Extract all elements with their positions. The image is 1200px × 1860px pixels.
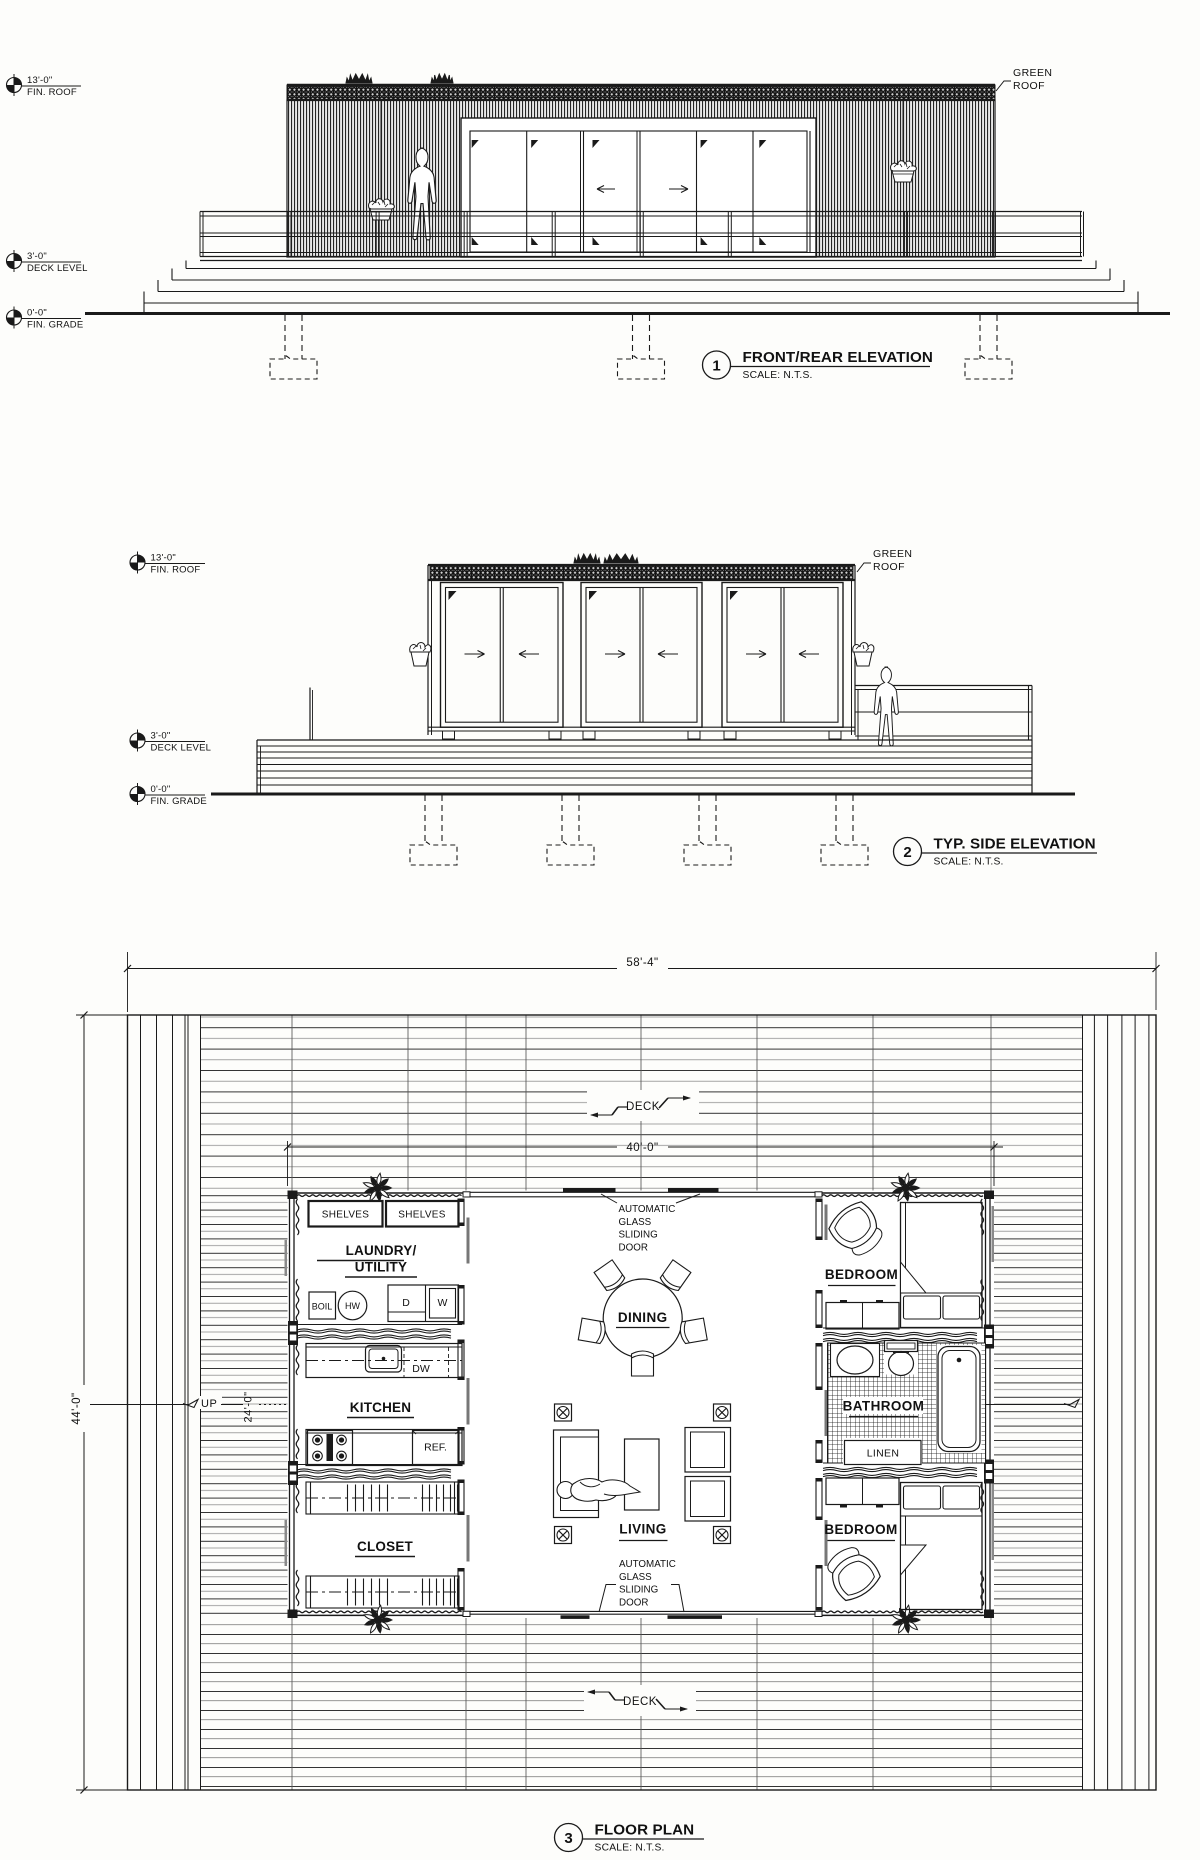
svg-text:AUTOMATIC: AUTOMATIC	[619, 1204, 676, 1215]
svg-text:TYP. SIDE ELEVATION: TYP. SIDE ELEVATION	[934, 836, 1096, 853]
svg-text:DOOR: DOOR	[619, 1242, 648, 1253]
svg-text:HW: HW	[345, 1301, 360, 1311]
svg-text:13'-0": 13'-0"	[27, 75, 52, 86]
svg-text:DECK: DECK	[623, 1696, 657, 1708]
svg-text:FIN. ROOF: FIN. ROOF	[27, 87, 77, 98]
svg-text:2: 2	[903, 844, 911, 861]
svg-text:W: W	[438, 1297, 448, 1309]
svg-text:SHELVES: SHELVES	[322, 1210, 370, 1221]
svg-text:SCALE: N.T.S.: SCALE: N.T.S.	[934, 857, 1004, 868]
svg-text:40'-0": 40'-0"	[626, 1142, 658, 1154]
svg-text:3: 3	[564, 1830, 572, 1847]
svg-text:FRONT/REAR ELEVATION: FRONT/REAR ELEVATION	[743, 349, 933, 366]
svg-text:3'-0": 3'-0"	[151, 731, 171, 742]
svg-text:ROOF: ROOF	[873, 561, 905, 573]
svg-text:D: D	[402, 1297, 410, 1309]
svg-text:GLASS: GLASS	[619, 1572, 652, 1583]
svg-text:SCALE: N.T.S.: SCALE: N.T.S.	[595, 1843, 665, 1854]
svg-text:3'-0": 3'-0"	[27, 251, 47, 262]
svg-text:0'-0": 0'-0"	[27, 308, 47, 319]
svg-text:DECK LEVEL: DECK LEVEL	[151, 743, 212, 754]
svg-text:SLIDING: SLIDING	[619, 1230, 658, 1241]
svg-text:FLOOR PLAN: FLOOR PLAN	[595, 1822, 695, 1839]
svg-text:LIVING: LIVING	[619, 1522, 666, 1537]
svg-text:LAUNDRY/: LAUNDRY/	[346, 1243, 417, 1258]
svg-text:24'-0": 24'-0"	[243, 1391, 255, 1422]
svg-text:BEDROOM: BEDROOM	[825, 1267, 898, 1282]
svg-text:BEDROOM: BEDROOM	[824, 1522, 897, 1537]
svg-text:0'-0": 0'-0"	[151, 784, 171, 795]
svg-text:DECK LEVEL: DECK LEVEL	[27, 263, 88, 274]
svg-text:REF.: REF.	[424, 1442, 447, 1454]
svg-text:1: 1	[712, 358, 720, 375]
svg-text:FIN. GRADE: FIN. GRADE	[151, 796, 207, 807]
svg-text:SHELVES: SHELVES	[398, 1210, 446, 1221]
svg-text:UTILITY: UTILITY	[355, 1260, 407, 1275]
svg-text:FIN. GRADE: FIN. GRADE	[27, 320, 83, 331]
svg-text:13'-0": 13'-0"	[151, 553, 176, 564]
svg-text:BOIL: BOIL	[312, 1302, 333, 1312]
svg-text:GREEN: GREEN	[1013, 67, 1052, 79]
svg-text:DINING: DINING	[618, 1310, 668, 1325]
svg-text:DECK: DECK	[626, 1101, 660, 1113]
svg-text:SCALE: N.T.S.: SCALE: N.T.S.	[743, 370, 813, 381]
svg-text:DW: DW	[412, 1363, 430, 1375]
svg-text:BATHROOM: BATHROOM	[843, 1399, 925, 1414]
svg-text:SLIDING: SLIDING	[619, 1585, 658, 1596]
svg-text:LINEN: LINEN	[867, 1448, 899, 1460]
svg-text:44'-0": 44'-0"	[71, 1392, 83, 1424]
svg-text:KITCHEN: KITCHEN	[350, 1400, 411, 1415]
svg-text:UP: UP	[201, 1398, 217, 1410]
svg-text:58'-4": 58'-4"	[626, 957, 658, 969]
svg-text:FIN. ROOF: FIN. ROOF	[151, 565, 201, 576]
svg-text:ROOF: ROOF	[1013, 80, 1045, 92]
svg-text:DOOR: DOOR	[619, 1597, 648, 1608]
svg-text:GREEN: GREEN	[873, 548, 912, 560]
svg-text:AUTOMATIC: AUTOMATIC	[619, 1559, 676, 1570]
svg-text:CLOSET: CLOSET	[357, 1539, 414, 1554]
svg-text:GLASS: GLASS	[619, 1217, 652, 1228]
